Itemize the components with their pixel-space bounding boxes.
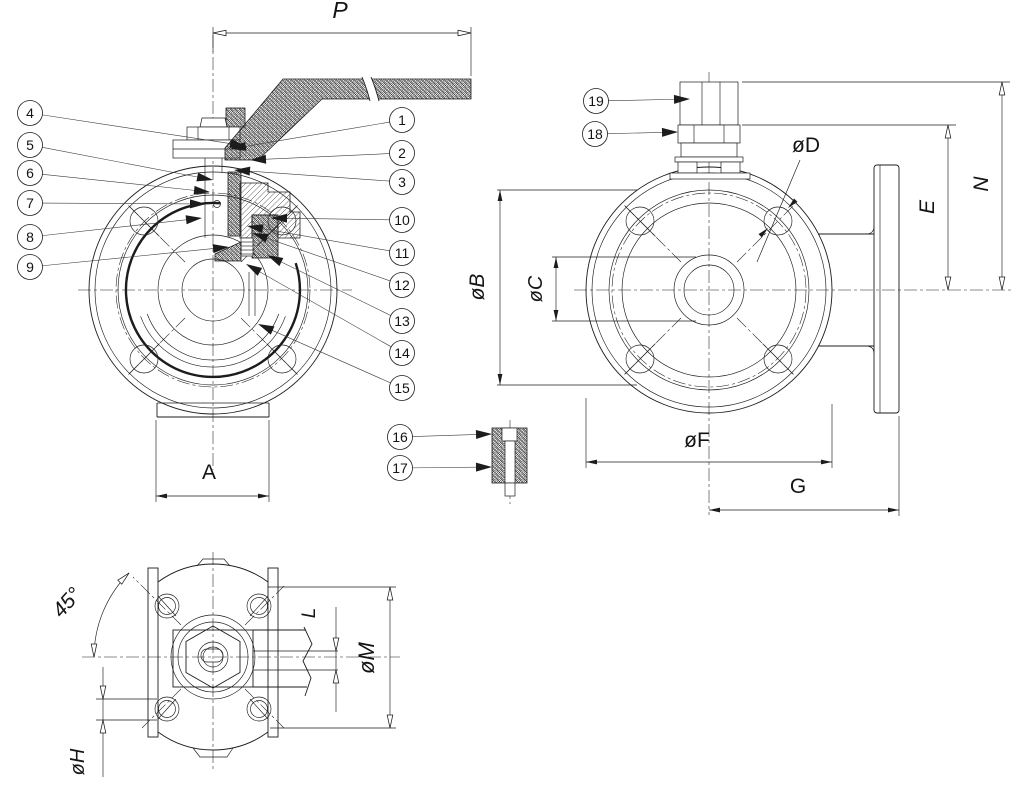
dim-G (709, 416, 899, 516)
callout-8: 8 (18, 214, 203, 250)
callout-19: 19 (584, 89, 691, 114)
callout-leader (42, 248, 223, 266)
dim-label-A: A (202, 461, 216, 484)
callout-arrowhead (476, 430, 492, 440)
callout-leader (412, 467, 486, 468)
callout-leader (42, 219, 196, 236)
handle-lever (225, 79, 471, 160)
dim-label-dia-D: øD (792, 134, 820, 157)
dim-arrowhead (821, 460, 832, 465)
callout-number: 16 (392, 429, 408, 445)
screw-shaft (505, 483, 515, 496)
callout-number: 1 (398, 112, 406, 128)
callout-number: 17 (392, 460, 408, 476)
side-flange (818, 165, 899, 413)
dim-arrowhead (999, 82, 1005, 95)
stop-plate (226, 108, 245, 127)
packing-rings (241, 238, 253, 256)
callout-number: 5 (26, 137, 34, 153)
callout-number: 6 (26, 165, 34, 181)
packing-column (228, 172, 241, 236)
callout-arrowhead (186, 214, 203, 225)
dim-arrowhead (458, 30, 471, 36)
mounting-plate (670, 173, 750, 179)
callout-arrowhead (190, 199, 206, 208)
callout-number: 3 (398, 174, 406, 190)
dim-arrowhead (118, 571, 131, 584)
stem-stack (670, 82, 750, 179)
dim-arrowhead (213, 30, 226, 36)
dim-arrowhead (554, 257, 559, 268)
callout-number: 15 (394, 380, 410, 396)
dim-arrowhead (999, 277, 1005, 290)
handle-break-zigzag (303, 627, 312, 696)
dim-45-arc (94, 573, 129, 657)
callout-6: 6 (18, 161, 211, 197)
callout-number: 4 (26, 105, 34, 121)
dim-arrowhead (709, 508, 720, 513)
stem-slot (201, 649, 223, 662)
pipe-flange (874, 165, 899, 413)
valve-technical-drawing: 12345678910111213141516171819 PøBøCAøDEN… (0, 0, 1024, 797)
callout-number: 10 (394, 212, 410, 228)
dim-label-dia-B: øB (466, 274, 489, 301)
stem-cap (200, 118, 227, 127)
callout-arrowhead (244, 260, 262, 276)
callout-18: 18 (583, 122, 679, 147)
dim-D-leader (757, 160, 800, 262)
stem-detail (492, 420, 527, 504)
dim-P (213, 27, 471, 76)
callout-number: 11 (395, 245, 410, 261)
callout-number: 8 (26, 229, 34, 245)
callout-arrowhead (256, 320, 274, 335)
drawing-canvas: 12345678910111213141516171819 PøBøCAøDEN… (0, 0, 1024, 797)
top-view (82, 552, 400, 777)
dim-arrowhead (498, 190, 503, 201)
dim-label-L: L (299, 608, 320, 619)
dim-label-dia-F: øF (684, 429, 710, 452)
dim-arrowhead (333, 670, 339, 683)
callout-14: 14 (244, 260, 415, 365)
callout-17: 17 (388, 456, 493, 481)
callout-leader (608, 99, 684, 101)
handle (225, 77, 471, 160)
callout-16: 16 (388, 425, 493, 450)
screw-head (502, 428, 517, 441)
dim-arrowhead (258, 494, 269, 499)
callout-number: 18 (587, 126, 603, 142)
dim-label-N: N (970, 176, 993, 192)
dim-label-dia-H: øH (67, 748, 89, 775)
packing-nut (678, 125, 740, 143)
stem-top (680, 82, 738, 125)
dim-label-dia-C: øC (525, 275, 547, 302)
callout-number: 9 (26, 259, 34, 275)
dim-arrowhead (91, 644, 97, 657)
dim-arrowhead (888, 508, 899, 513)
dim-label-G: G (790, 475, 806, 498)
dim-arrowhead (387, 587, 393, 600)
callout-arrowhead (476, 463, 492, 472)
callout-arrowhead (662, 128, 678, 137)
dim-arrowhead (387, 715, 393, 728)
dim-label-dia-M: øM (354, 641, 379, 673)
dim-C (552, 257, 696, 321)
dim-arrowhead (498, 374, 503, 385)
dim-arrowhead (333, 638, 339, 651)
callout-leader (412, 434, 486, 436)
dim-arrowhead (100, 720, 106, 733)
dim-arrowhead (945, 125, 951, 138)
callout-number: 12 (394, 277, 410, 293)
callout-number: 14 (394, 345, 410, 361)
callout-leader (251, 267, 391, 347)
dim-label-45deg: 45° (48, 583, 86, 622)
dim-arrowhead (156, 494, 167, 499)
handle-top-projection (253, 627, 338, 696)
dim-arrowhead (554, 310, 559, 321)
dimension-labels-layer: PøBøCAøDENøFG45°øHLøM (48, 0, 993, 775)
dim-label-E: E (916, 199, 939, 214)
callout-number: 7 (26, 195, 34, 211)
dim-arrowhead (586, 460, 597, 465)
callout-9: 9 (18, 243, 230, 280)
dim-arrowhead (100, 686, 106, 699)
callout-7: 7 (18, 191, 207, 216)
callout-number: 13 (394, 313, 410, 329)
callout-number: 2 (398, 145, 406, 161)
callout-leader (42, 203, 200, 204)
seat-retainer (215, 242, 241, 261)
dim-arrowhead (945, 277, 951, 290)
callout-leader (272, 258, 390, 316)
callout-leader (240, 170, 390, 181)
callout-leader (256, 154, 390, 160)
callout-number: 19 (588, 93, 604, 109)
dim-label-P: P (332, 0, 348, 23)
